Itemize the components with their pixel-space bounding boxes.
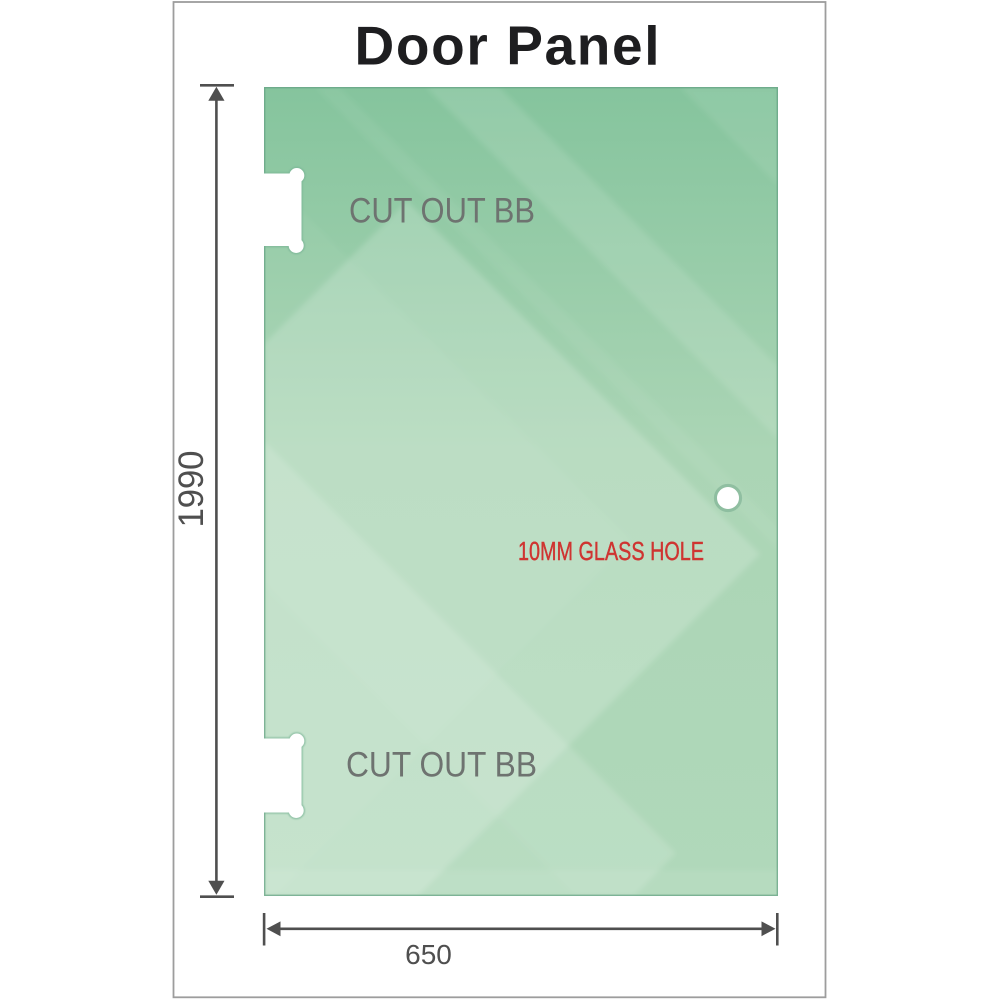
svg-text:CUT OUT BB: CUT OUT BB xyxy=(349,192,535,231)
svg-text:CUT OUT BB: CUT OUT BB xyxy=(346,746,537,785)
svg-text:650: 650 xyxy=(405,939,452,970)
svg-text:Door Panel: Door Panel xyxy=(355,15,660,77)
svg-text:1990: 1990 xyxy=(172,451,211,528)
svg-text:10MM GLASS HOLE: 10MM GLASS HOLE xyxy=(518,538,704,566)
